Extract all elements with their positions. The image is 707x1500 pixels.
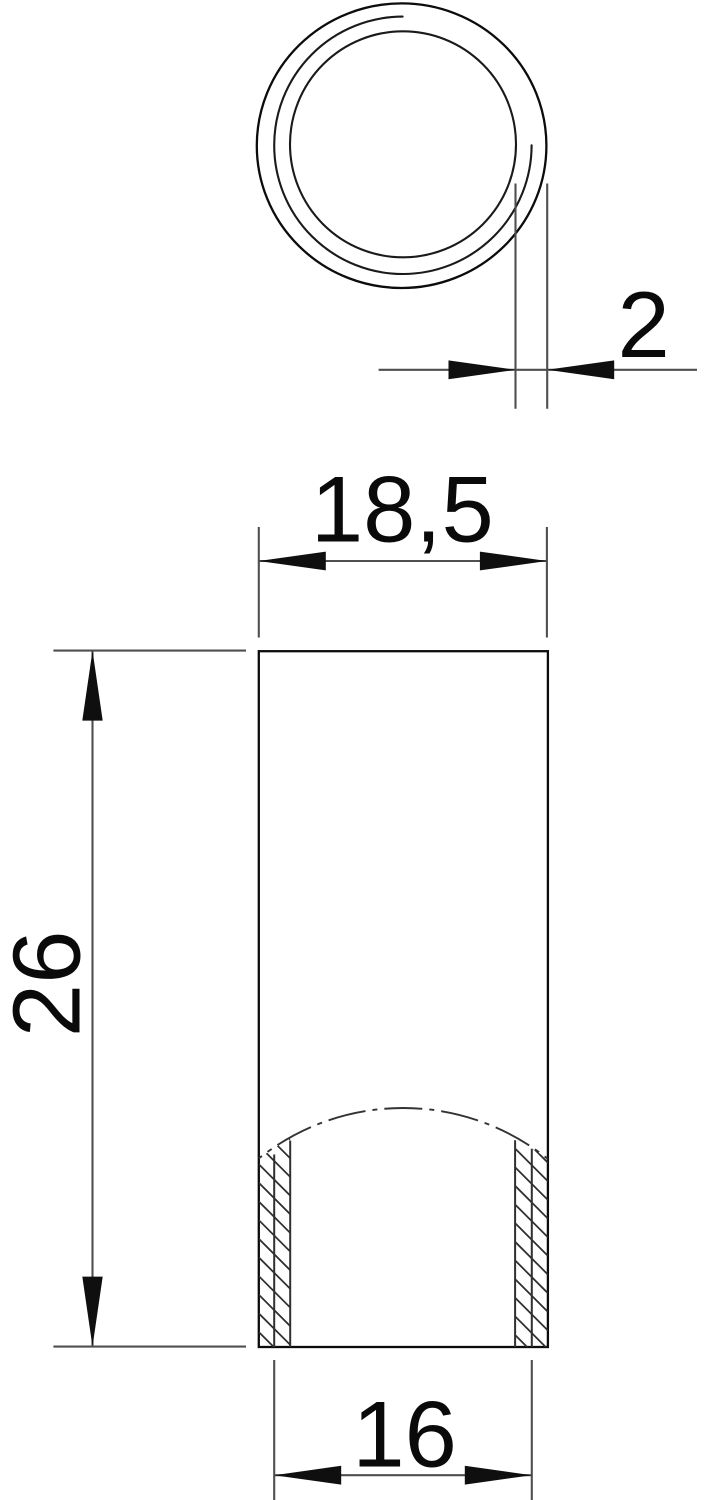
svg-text:16: 16 [352,1382,457,1487]
svg-text:2: 2 [618,272,670,377]
svg-text:26: 26 [0,930,100,1037]
svg-text:18,5: 18,5 [311,457,494,562]
